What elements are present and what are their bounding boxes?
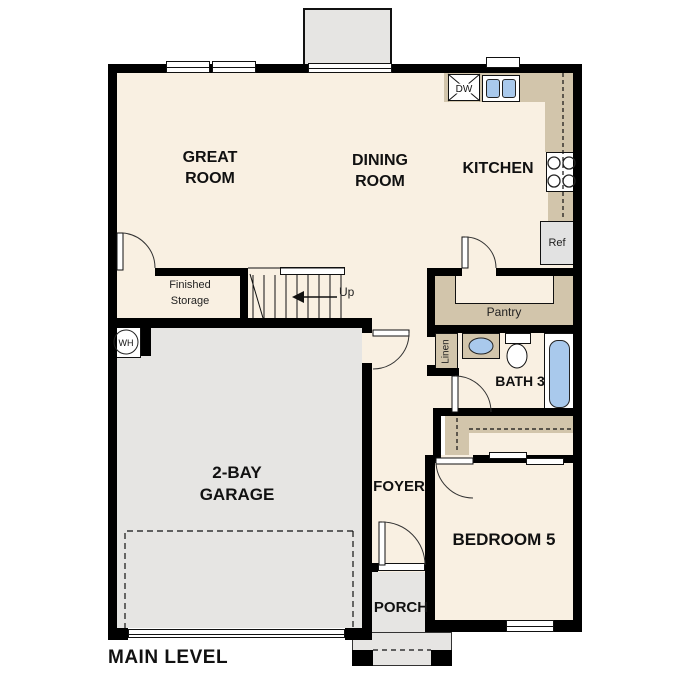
wall-foyer-bottom bbox=[362, 563, 378, 572]
linen-label: Linen bbox=[441, 339, 452, 363]
up-label: Up bbox=[339, 285, 369, 301]
refrigerator-box: Ref bbox=[540, 221, 574, 265]
linen-label-box: Linen bbox=[435, 333, 458, 370]
room-label-finished-storage: Finished Storage bbox=[150, 278, 230, 310]
wall-garage-bottom-right bbox=[345, 628, 372, 640]
floor-plan: Ref bbox=[0, 0, 687, 687]
window-bump bbox=[308, 63, 392, 73]
window-greatroom-2 bbox=[212, 61, 256, 73]
bath-vanity bbox=[462, 333, 500, 359]
exterior-bump bbox=[303, 8, 392, 66]
closet-bypass-door-b bbox=[526, 458, 564, 465]
bedroom-closet-shelf bbox=[469, 416, 573, 433]
bathtub-basin bbox=[549, 340, 570, 408]
sink-basin-right bbox=[502, 79, 516, 98]
kitchen-counter-below-stove bbox=[548, 191, 574, 221]
room-label-great-room: GREAT ROOM bbox=[160, 148, 260, 190]
plan-title: MAIN LEVEL bbox=[108, 646, 228, 671]
room-label-dining-room: DINING ROOM bbox=[330, 151, 430, 193]
coat-closet bbox=[445, 416, 469, 455]
garage-door bbox=[128, 629, 345, 638]
wall-bath-bottom bbox=[433, 408, 573, 416]
wall-pantry-top-left bbox=[427, 268, 462, 276]
room-label-bath3: BATH 3 bbox=[494, 372, 546, 390]
wall-garage-right-upper bbox=[362, 318, 372, 333]
closet-bypass-door-a bbox=[489, 452, 527, 459]
room-label-porch: PORCH bbox=[361, 598, 441, 618]
room-label-garage: 2-BAY GARAGE bbox=[177, 462, 297, 506]
porch-pillar-right bbox=[431, 650, 452, 666]
pantry-notch bbox=[455, 276, 554, 304]
wall-garage-bottom-left bbox=[108, 628, 128, 640]
wall-pantry-bottom bbox=[427, 325, 573, 333]
wall-storage-top bbox=[155, 268, 240, 276]
wall-bedroom-bottom bbox=[425, 620, 582, 632]
pantry-label: Pantry bbox=[454, 305, 554, 321]
front-door-sill bbox=[378, 563, 425, 571]
wall-left bbox=[108, 64, 117, 640]
room-label-bedroom5: BEDROOM 5 bbox=[424, 529, 584, 551]
window-kitchen bbox=[486, 57, 520, 68]
wall-bedroom-top-a bbox=[473, 455, 490, 463]
sink-basin-left bbox=[486, 79, 500, 98]
window-bedroom5 bbox=[506, 620, 554, 632]
refrigerator-label: Ref bbox=[548, 237, 565, 249]
stair-landing bbox=[280, 267, 345, 275]
window-greatroom-1 bbox=[166, 61, 210, 73]
dishwasher-box bbox=[448, 74, 480, 101]
wall-pantry-top-right bbox=[496, 268, 573, 276]
room-label-foyer: FOYER bbox=[359, 477, 439, 497]
toilet-tank bbox=[505, 333, 531, 344]
porch-pillar-left bbox=[352, 650, 373, 666]
wall-segment bbox=[141, 326, 151, 356]
linen-opening bbox=[427, 337, 435, 365]
wall-garage-top bbox=[108, 318, 372, 328]
kitchen-counter-right bbox=[545, 72, 573, 152]
room-label-kitchen: KITCHEN bbox=[448, 159, 548, 180]
